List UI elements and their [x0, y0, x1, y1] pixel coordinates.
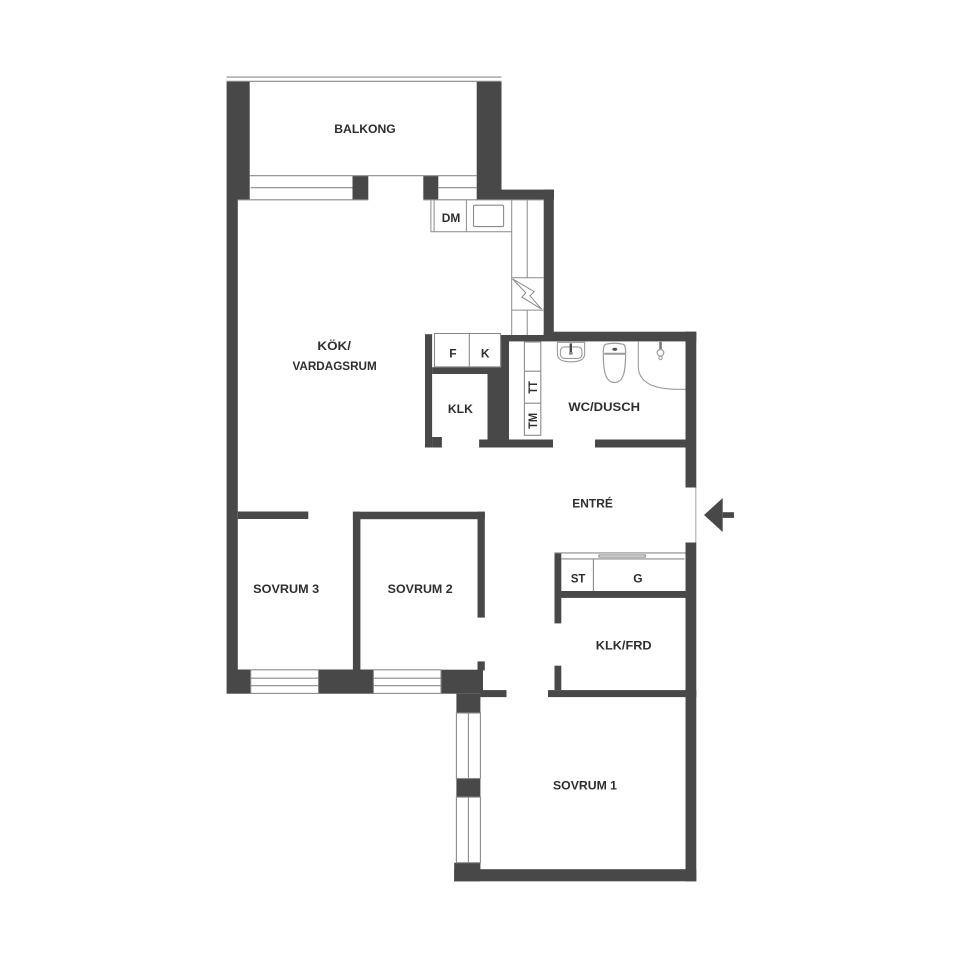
svg-text:WC/DUSCH: WC/DUSCH — [568, 400, 640, 414]
svg-text:DM: DM — [442, 211, 461, 225]
svg-text:SOVRUM 3: SOVRUM 3 — [253, 582, 319, 596]
svg-text:ENTRÉ: ENTRÉ — [572, 496, 613, 511]
svg-text:TT: TT — [526, 381, 540, 394]
svg-text:F: F — [449, 346, 456, 360]
svg-text:SOVRUM 1: SOVRUM 1 — [553, 779, 617, 793]
svg-text:TM: TM — [526, 413, 540, 429]
svg-text:KÖK/: KÖK/ — [317, 338, 351, 353]
svg-text:SOVRUM 2: SOVRUM 2 — [388, 582, 453, 596]
svg-text:KLK: KLK — [448, 402, 473, 416]
svg-text:KLK/FRD: KLK/FRD — [596, 639, 652, 653]
svg-text:G: G — [633, 571, 642, 585]
svg-text:BALKONG: BALKONG — [334, 122, 396, 136]
svg-text:K: K — [481, 346, 490, 360]
svg-text:VARDAGSRUM: VARDAGSRUM — [293, 359, 377, 373]
svg-text:ST: ST — [571, 571, 586, 585]
